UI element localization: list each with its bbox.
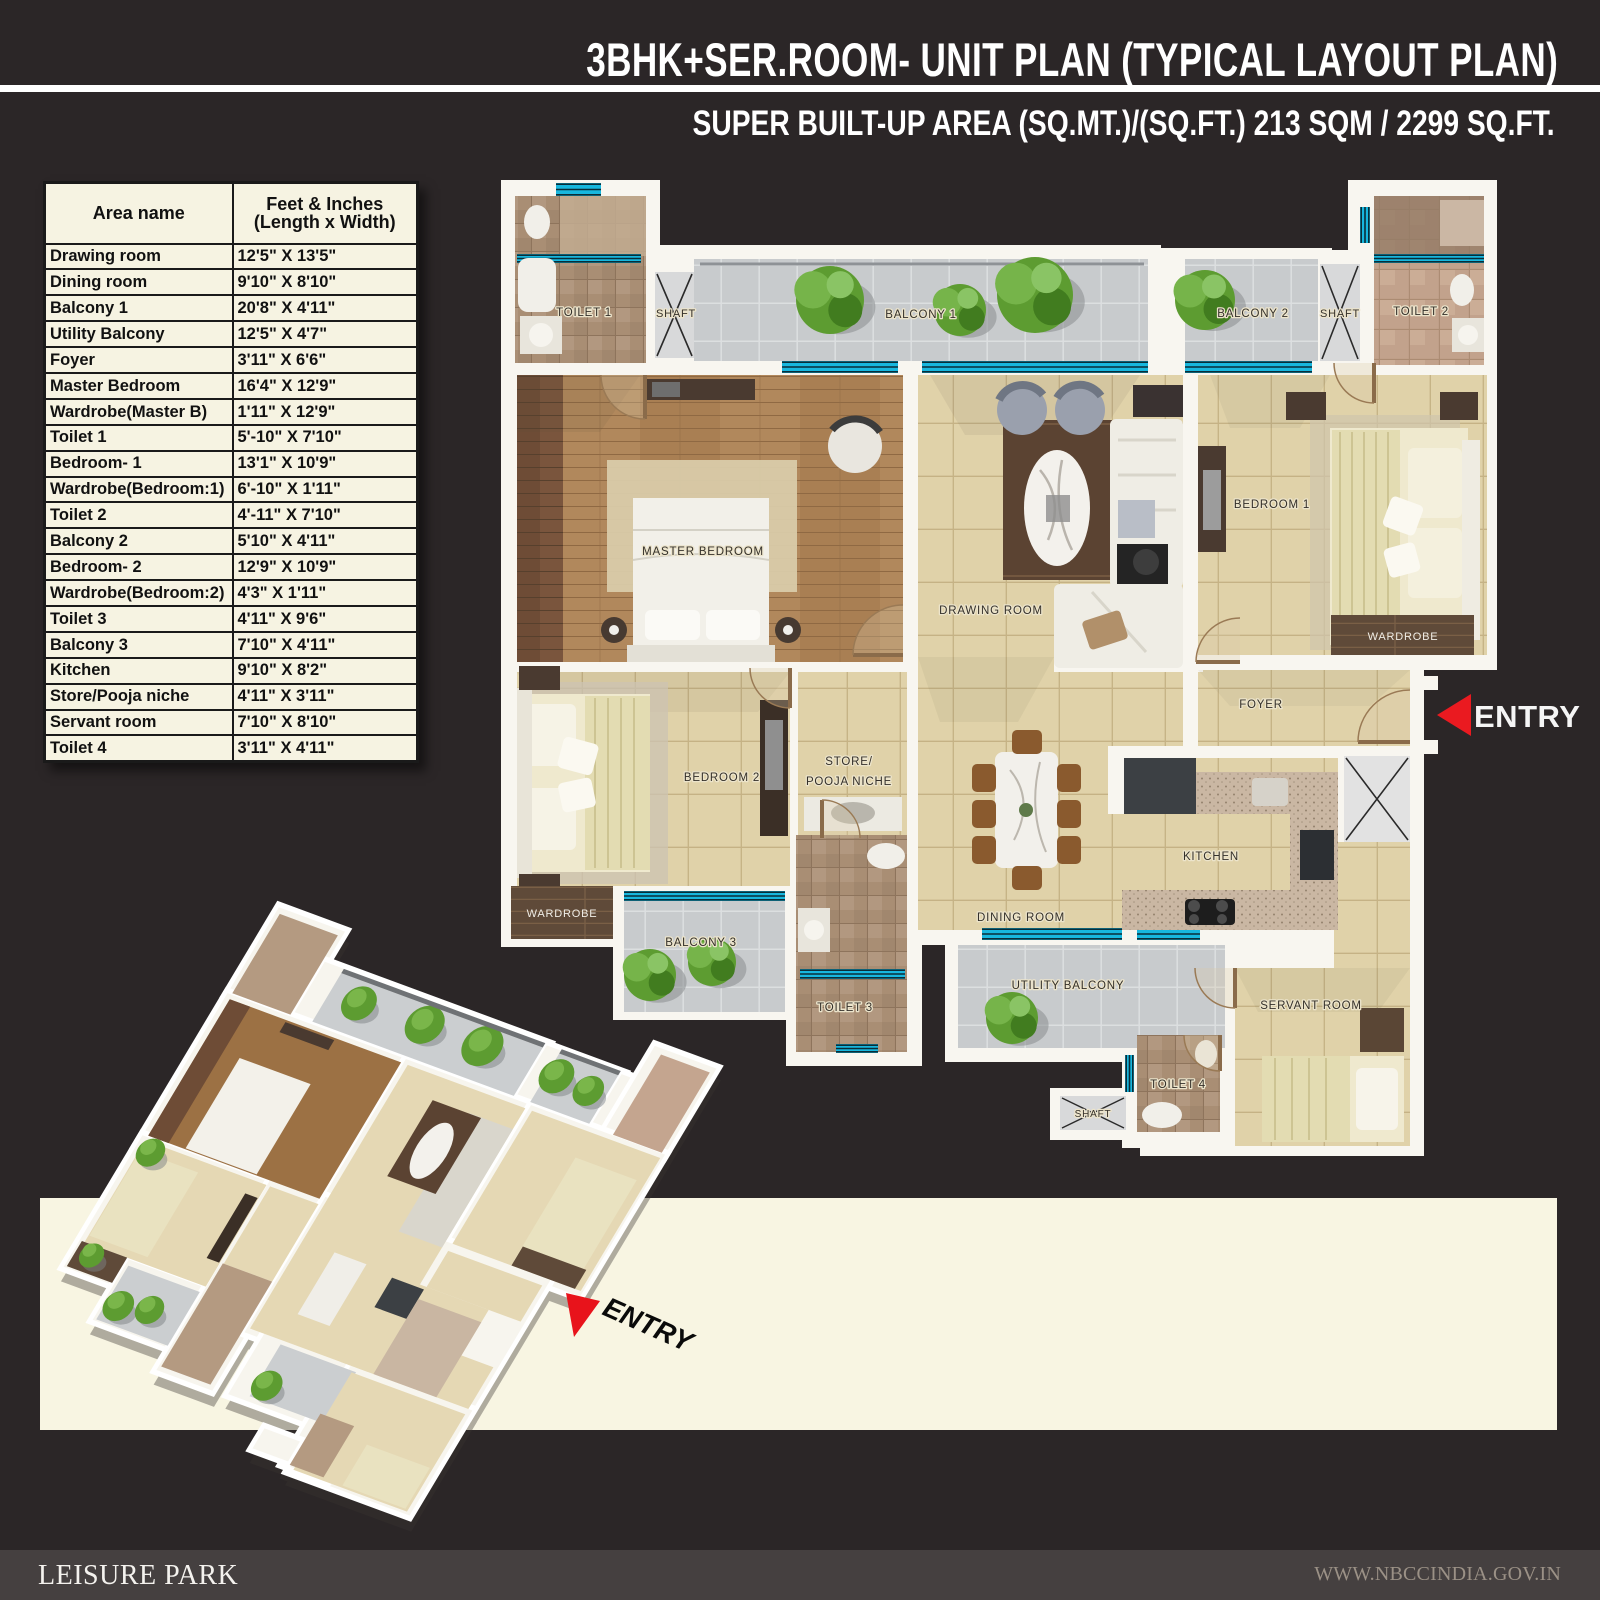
svg-text:DINING ROOM: DINING ROOM: [977, 912, 1065, 924]
svg-text:BALCONY 2: BALCONY 2: [1217, 308, 1289, 320]
svg-text:SHAFT: SHAFT: [656, 308, 696, 320]
svg-text:WARDROBE: WARDROBE: [527, 908, 598, 920]
svg-text:TOILET 4: TOILET 4: [1150, 1079, 1206, 1091]
svg-text:BEDROOM 2: BEDROOM 2: [684, 772, 760, 784]
svg-text:FOYER: FOYER: [1239, 699, 1283, 711]
svg-text:ENTRY: ENTRY: [1474, 699, 1580, 734]
svg-text:TOILET 1: TOILET 1: [556, 307, 612, 319]
svg-text:KITCHEN: KITCHEN: [1183, 851, 1239, 863]
svg-text:WARDROBE: WARDROBE: [1368, 631, 1439, 643]
svg-text:BALCONY 1: BALCONY 1: [885, 309, 957, 321]
svg-text:MASTER BEDROOM: MASTER BEDROOM: [642, 546, 764, 558]
svg-text:POOJA NICHE: POOJA NICHE: [806, 776, 892, 788]
svg-text:TOILET 3: TOILET 3: [817, 1002, 873, 1014]
svg-text:TOILET 2: TOILET 2: [1393, 306, 1449, 318]
svg-text:DRAWING ROOM: DRAWING ROOM: [939, 605, 1043, 617]
svg-text:STORE/: STORE/: [825, 756, 872, 768]
svg-text:BEDROOM 1: BEDROOM 1: [1234, 499, 1310, 511]
svg-text:BALCONY 3: BALCONY 3: [665, 937, 737, 949]
svg-text:SERVANT ROOM: SERVANT ROOM: [1260, 1000, 1362, 1012]
svg-text:SHAFT: SHAFT: [1320, 308, 1360, 320]
svg-text:ENTRY: ENTRY: [599, 1291, 700, 1359]
svg-text:UTILITY BALCONY: UTILITY BALCONY: [1012, 980, 1125, 992]
svg-text:SHAFT: SHAFT: [1075, 1109, 1112, 1120]
